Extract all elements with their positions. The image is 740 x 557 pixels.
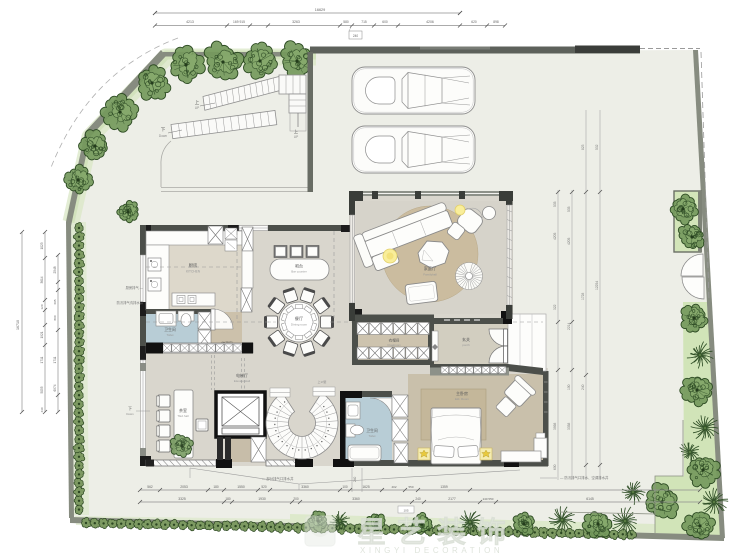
svg-text:550: 550 (408, 485, 413, 489)
svg-text:TEA hall: TEA hall (177, 414, 189, 418)
svg-text:下: 下 (128, 407, 132, 411)
svg-text:240: 240 (415, 497, 421, 501)
svg-text:580: 580 (343, 20, 349, 24)
svg-text:6974: 6974 (53, 384, 57, 391)
svg-text:Down: Down (126, 412, 134, 416)
svg-text:3614: 3614 (40, 276, 44, 283)
svg-text:620: 620 (471, 20, 477, 24)
svg-text:玄关: 玄关 (462, 336, 470, 342)
svg-text:家庭厅: 家庭厅 (424, 265, 437, 272)
svg-text:防汛排气沟排水井: 防汛排气沟排水井 (117, 300, 144, 305)
svg-text:1023: 1023 (40, 242, 44, 249)
svg-text:卫生间: 卫生间 (366, 428, 378, 433)
svg-text:2214: 2214 (567, 322, 571, 330)
svg-text:16710: 16710 (16, 320, 20, 330)
svg-text:电梯厅: 电梯厅 (236, 372, 248, 378)
svg-text:898: 898 (493, 20, 499, 24)
svg-text:吧台: 吧台 (295, 263, 303, 269)
svg-text:茶室: 茶室 (179, 407, 187, 413)
svg-text:ElevatorHall: ElevatorHall (234, 379, 251, 383)
svg-text:12254: 12254 (595, 281, 599, 290)
svg-text:600: 600 (382, 20, 388, 24)
svg-text:1711: 1711 (53, 356, 57, 363)
svg-text:4205: 4205 (567, 237, 571, 245)
svg-text:UP: UP (195, 106, 199, 110)
svg-text:4213: 4213 (186, 20, 194, 24)
svg-text:1711: 1711 (40, 356, 44, 363)
svg-text:1921: 1921 (40, 331, 44, 338)
svg-text:Dining room: Dining room (291, 323, 308, 327)
svg-text:2177: 2177 (448, 497, 456, 501)
svg-text:卫生间: 卫生间 (164, 327, 176, 332)
svg-text:1550: 1550 (237, 485, 245, 489)
svg-text:3998: 3998 (553, 422, 557, 430)
svg-text:Down: Down (159, 134, 167, 138)
svg-text:240: 240 (353, 34, 359, 38)
svg-text:Familyhall: Familyhall (423, 273, 437, 277)
svg-text:4205: 4205 (553, 232, 557, 240)
svg-text:3360: 3360 (352, 497, 360, 501)
svg-text:1625: 1625 (362, 485, 370, 489)
svg-text:16629: 16629 (315, 8, 326, 12)
svg-text:180: 180 (213, 485, 219, 489)
svg-text:— 防汛排气口排水、空调排水井: — 防汛排气口排水、空调排水井 (560, 475, 609, 480)
svg-text:2053: 2053 (180, 485, 188, 489)
svg-text:600: 600 (553, 464, 557, 470)
svg-text:厨房排气 —: 厨房排气 — (126, 285, 144, 290)
svg-text:衣帽间: 衣帽间 (389, 338, 400, 343)
svg-text:1930: 1930 (258, 497, 266, 501)
svg-text:100: 100 (342, 485, 348, 489)
svg-text:695: 695 (53, 299, 57, 304)
svg-text:3358: 3358 (567, 422, 571, 430)
svg-text:200: 200 (293, 497, 299, 501)
svg-text:餐厅: 餐厅 (295, 315, 303, 322)
svg-text:322: 322 (553, 304, 557, 310)
svg-text:715: 715 (361, 20, 367, 24)
svg-text:169 915: 169 915 (233, 20, 245, 24)
svg-text:240: 240 (353, 476, 357, 482)
svg-text:440: 440 (40, 407, 44, 412)
svg-text:KITCHEN: KITCHEN (186, 270, 201, 274)
svg-text:562: 562 (147, 485, 153, 489)
svg-text:UP: UP (294, 135, 298, 139)
svg-text:105: 105 (403, 509, 408, 513)
svg-text:4206: 4206 (426, 20, 434, 24)
svg-text:XINGYI DECORATION: XINGYI DECORATION (360, 546, 503, 555)
svg-text:800: 800 (53, 315, 57, 320)
svg-text:Toilet: Toilet (368, 434, 375, 438)
svg-text:porch: porch (462, 343, 470, 347)
svg-text:520: 520 (261, 485, 267, 489)
svg-text:6145: 6145 (586, 497, 594, 501)
svg-text:240 550: 240 550 (483, 497, 494, 501)
svg-text:3360: 3360 (301, 485, 309, 489)
svg-text:— 部分排气口排水井: — 部分排气口排水井 (262, 476, 294, 481)
svg-text:532: 532 (595, 144, 599, 150)
svg-text:上17踏: 上17踏 (318, 380, 327, 384)
svg-text:180: 180 (225, 497, 231, 501)
svg-text:上: 上 (294, 128, 298, 134)
svg-text:Eld. Room: Eld. Room (455, 397, 470, 401)
svg-text:100: 100 (567, 384, 571, 390)
svg-text:535: 535 (567, 206, 571, 212)
svg-text:240: 240 (581, 384, 585, 390)
svg-text:1359: 1359 (440, 485, 448, 489)
svg-text:535: 535 (553, 201, 557, 207)
svg-text:上: 上 (195, 99, 200, 105)
svg-text:Bar counter: Bar counter (291, 270, 307, 274)
svg-text:823: 823 (581, 144, 585, 150)
svg-text:Cloakroom: Cloakroom (387, 343, 401, 347)
svg-text:1728: 1728 (581, 292, 585, 300)
svg-text:2548: 2548 (53, 266, 57, 273)
svg-text:厨房: 厨房 (189, 262, 198, 269)
svg-text:3263: 3263 (292, 20, 300, 24)
svg-text:星艺装饰: 星艺装饰 (357, 516, 517, 549)
svg-text:主卧房: 主卧房 (456, 390, 468, 396)
svg-text:3325: 3325 (178, 497, 186, 501)
svg-text:Toilet: Toilet (166, 333, 173, 337)
svg-text:5055: 5055 (40, 386, 44, 393)
svg-text:120: 120 (40, 304, 44, 309)
svg-text:402: 402 (391, 485, 396, 489)
